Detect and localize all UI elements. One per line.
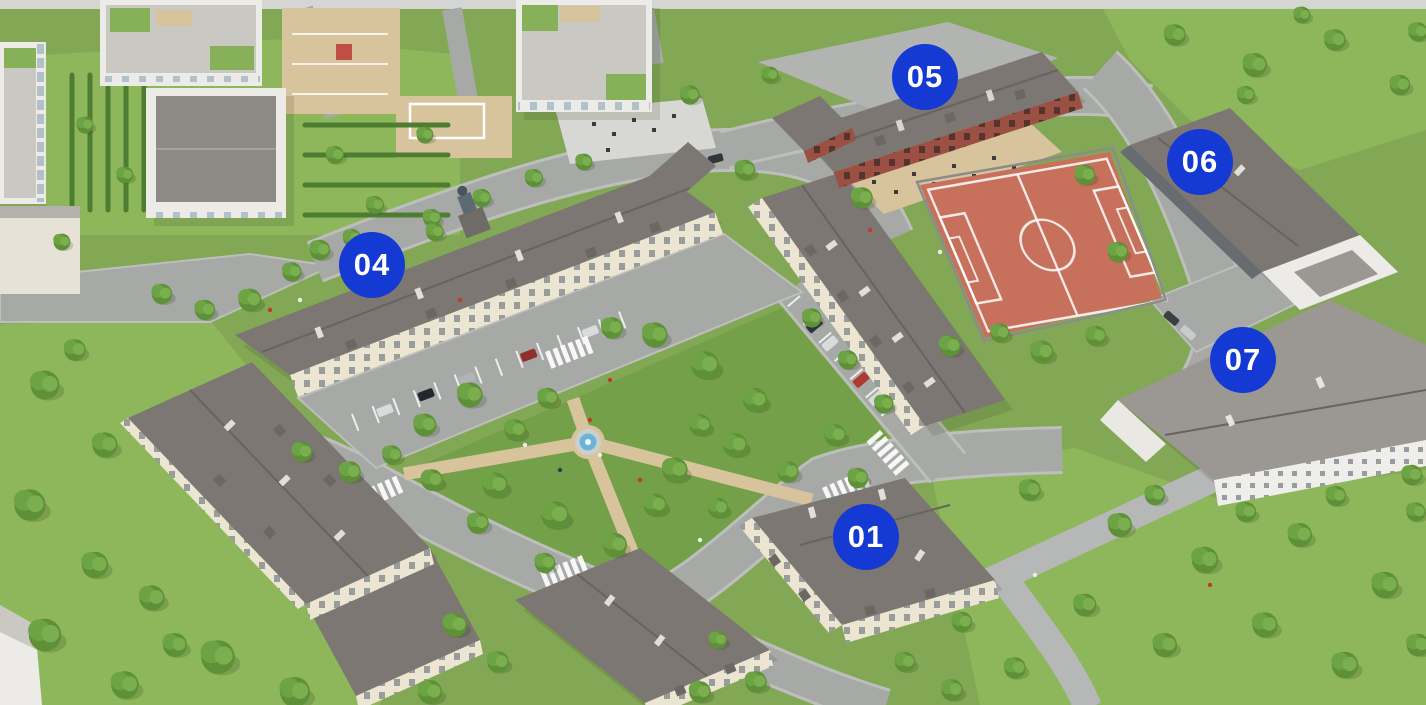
building-marker-04[interactable]: 04 xyxy=(339,232,405,298)
playground xyxy=(282,8,400,114)
modern-block xyxy=(0,42,46,204)
building-marker-06[interactable]: 06 xyxy=(1167,129,1233,195)
building-marker-01[interactable]: 01 xyxy=(833,504,899,570)
modern-block xyxy=(100,0,262,86)
aerial-site-plan: 0104050607 xyxy=(0,0,1426,705)
modern-block xyxy=(146,88,294,226)
building-marker-07[interactable]: 07 xyxy=(1210,327,1276,393)
building-marker-05[interactable]: 05 xyxy=(892,44,958,110)
modern-block xyxy=(516,0,660,120)
